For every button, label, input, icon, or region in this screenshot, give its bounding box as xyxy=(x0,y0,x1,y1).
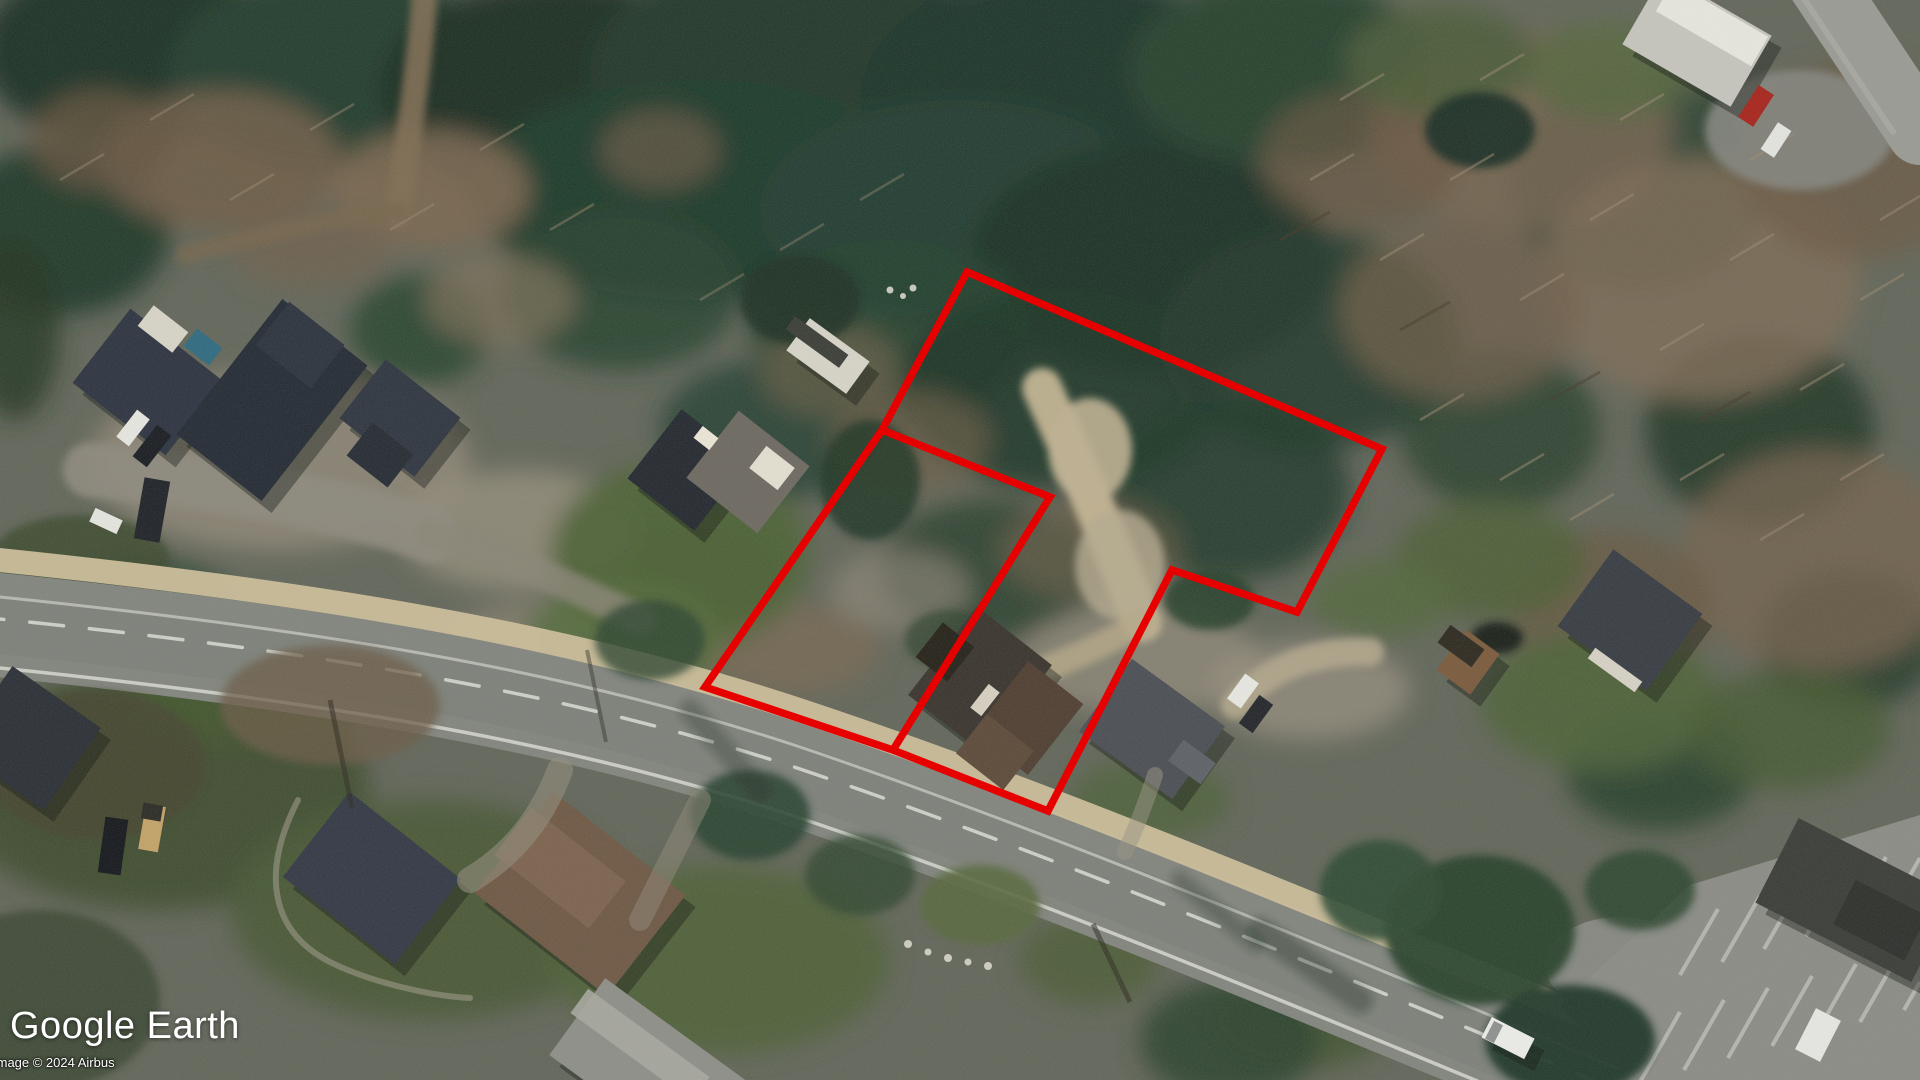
google-earth-logo: Google Earth xyxy=(10,1005,240,1048)
satellite-map-viewport[interactable] xyxy=(0,0,1920,1080)
layer-grain xyxy=(0,0,1920,1080)
imagery-attribution: Image © 2024 Airbus xyxy=(0,1055,115,1070)
google-earth-window: Google Earth Image © 2024 Airbus xyxy=(0,0,1920,1080)
